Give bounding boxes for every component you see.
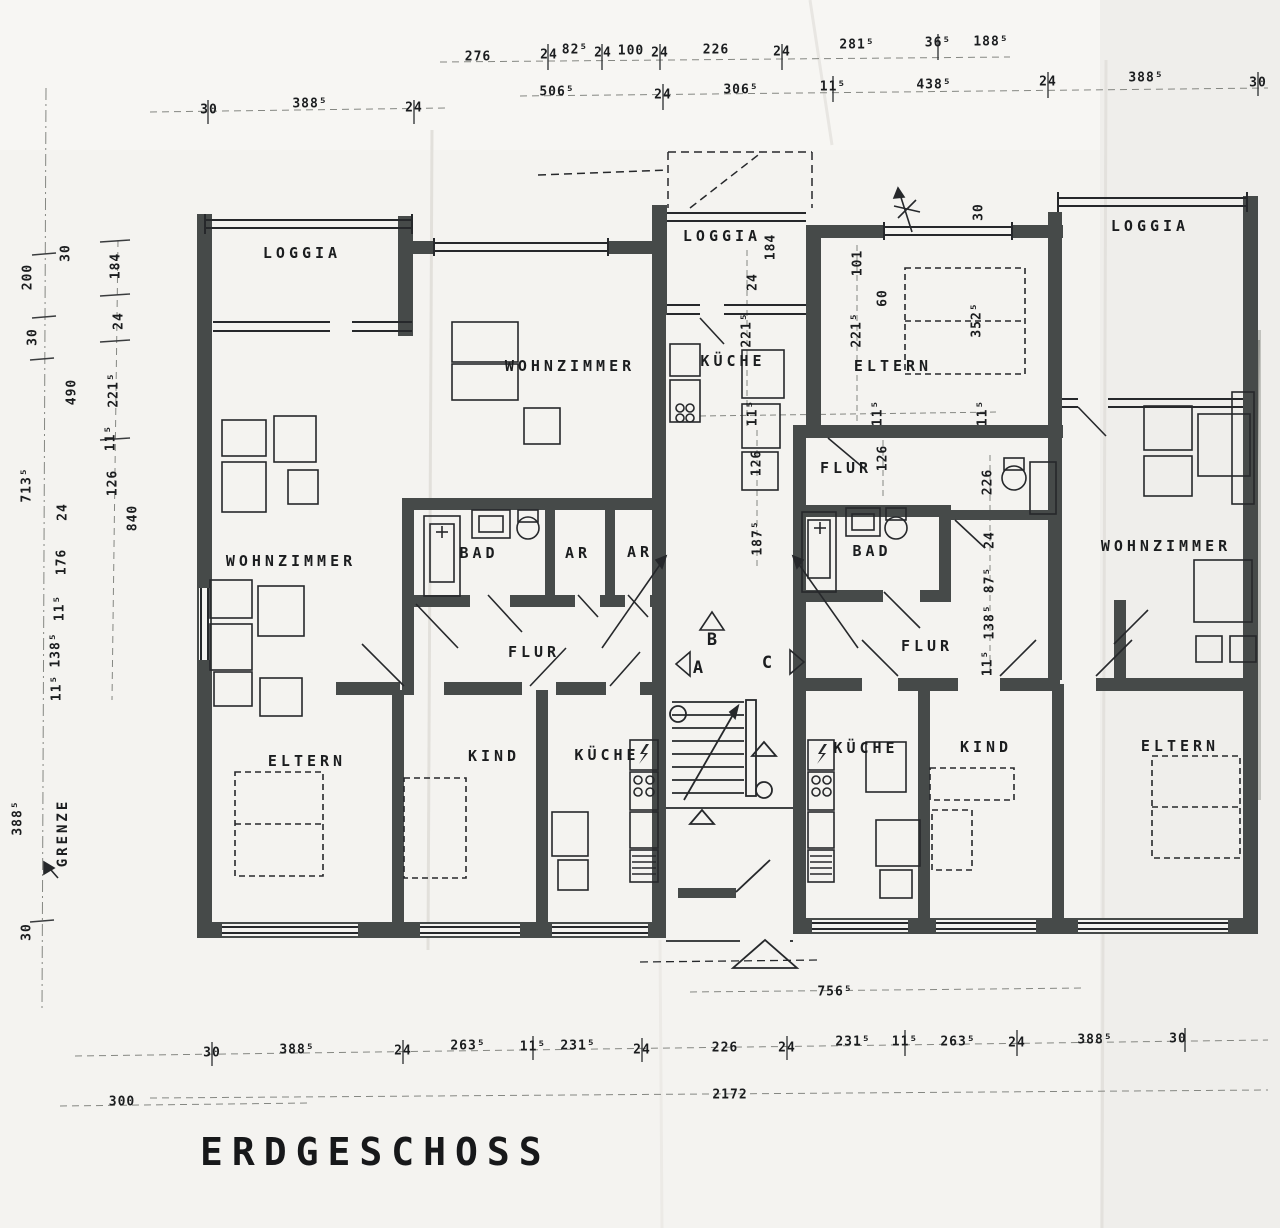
- floor-plan-drawing: [0, 0, 1280, 1228]
- paper-creases: [0, 0, 1280, 1228]
- plan-title: ERDGESCHOSS: [200, 1130, 551, 1174]
- scanned-floor-plan-page: LOGGIAWOHNZIMMERLOGGIAKÜCHEELTERNLOGGIAW…: [0, 0, 1280, 1228]
